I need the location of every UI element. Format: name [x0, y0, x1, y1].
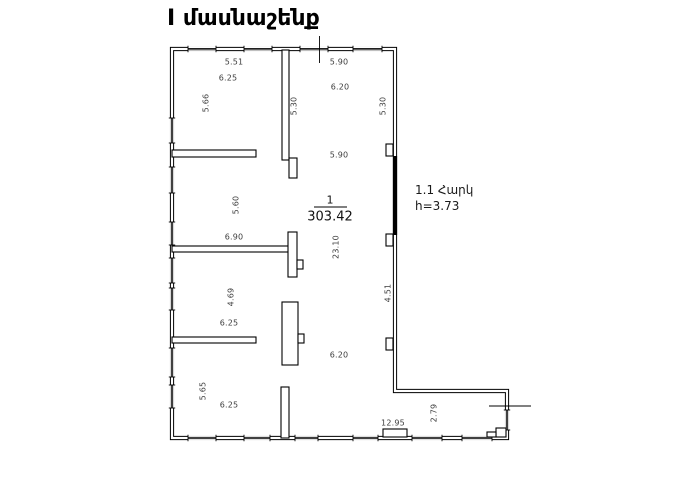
dim-hall-top-width: 5.90 [330, 58, 349, 67]
dim-right-wall-height: 4.51 [384, 284, 393, 303]
dim-hall-width-lower: 6.20 [330, 351, 349, 360]
floor-note-line2: h=3.73 [415, 199, 459, 213]
dim-room2-height: 5.60 [232, 196, 241, 215]
dim-room1-height: 5.66 [202, 94, 211, 113]
floor-plan-page: I մասնաշենք 1 303.42 1.1 Հարկ h=3.73 5.5… [0, 0, 674, 477]
dim-room4-width: 6.25 [220, 401, 239, 410]
dim-bottom-width: 12.95 [381, 419, 405, 428]
dim-hall-inner-width: 5.90 [330, 151, 349, 160]
dim-wing-height: 2.79 [430, 404, 439, 423]
dim-room1-top: 5.51 [225, 58, 244, 67]
dim-room2-width: 6.90 [225, 233, 244, 242]
dim-hall-height: 23.10 [332, 235, 341, 259]
dim-hall-upper-height-right: 5.30 [379, 97, 388, 116]
room-number: 1 [327, 194, 334, 207]
dim-room3-height: 4.69 [227, 288, 236, 307]
window-icon-wing-right [504, 410, 510, 430]
dim-room1-width: 6.25 [219, 74, 238, 83]
dim-room4-height: 5.65 [199, 382, 208, 401]
page-title: I մասնաշենք [167, 6, 320, 31]
room-area: 303.42 [307, 210, 353, 225]
floor-note-line1: 1.1 Հարկ [415, 183, 473, 197]
dim-hall-width-upper: 6.20 [331, 83, 350, 92]
dim-room3-width: 6.25 [220, 319, 239, 328]
dim-hall-upper-height-left: 5.30 [290, 97, 299, 116]
